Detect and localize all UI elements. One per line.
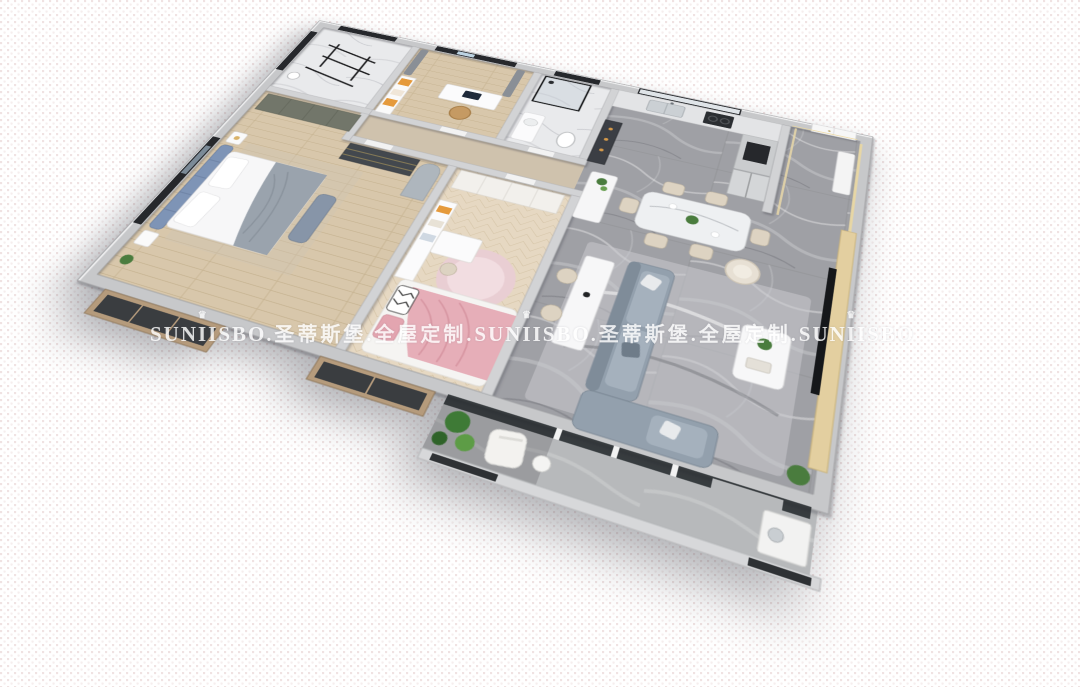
apartment-3d-plan xyxy=(20,17,895,612)
floorplan-render-canvas: ♛SUNIISBO.圣蒂斯堡.全屋定制.♛SUNIISBO.圣蒂斯堡.全屋定制.… xyxy=(0,0,1080,687)
apartment-svg xyxy=(20,17,895,612)
sofa-pillow xyxy=(621,342,639,358)
